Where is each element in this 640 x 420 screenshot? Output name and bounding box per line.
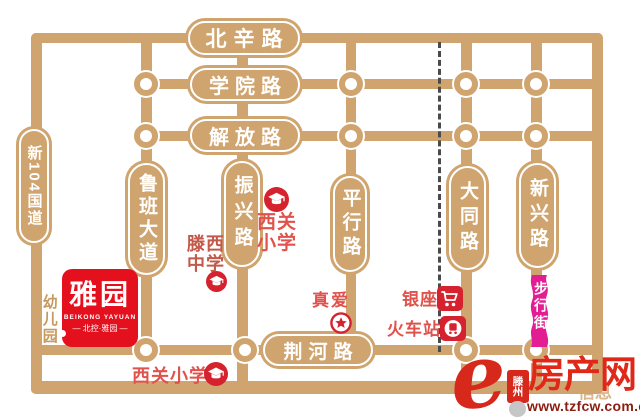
road-label-jinghe: 荆河路: [263, 334, 373, 366]
road-label-pingxing: 平行路: [333, 176, 367, 272]
road-label-pedestrian-street: 步行街: [531, 281, 551, 332]
project-logo: 雅园 BEIKONG YAYUAN — 北控·雅园 —: [62, 269, 138, 347]
landmark-xiguan-primary-south: 西关小学: [132, 366, 208, 386]
road-label-g104: 新104国道: [19, 129, 49, 243]
junction-ring: [339, 124, 363, 148]
watermark-capsule: [509, 401, 526, 417]
landmark-xiguan-primary-north: 西关 小学: [252, 212, 302, 255]
landmark-yinzuo: 银座: [402, 290, 438, 309]
project-subtitle: BEIKONG YAYUAN: [64, 314, 136, 321]
road-label-beixin: 北辛路: [188, 21, 300, 55]
junction-ring: [454, 124, 478, 148]
landmark-railway-station: 火车站: [387, 320, 441, 339]
project-title: 雅园: [69, 282, 131, 310]
landmark-text-line: 滕西: [182, 234, 230, 254]
watermark-url: www.tzfcw.com.cn: [527, 398, 640, 414]
landmark-tengxi-middle-school: 滕西 中学: [182, 234, 230, 274]
shopping-cart-icon: [437, 286, 463, 311]
junction-ring: [339, 72, 363, 96]
landmark-kindergarten: 幼儿园: [40, 294, 57, 345]
school-icon: [264, 187, 289, 212]
landmark-text-line: 小学: [252, 233, 302, 254]
road-label-datong: 大同路: [449, 166, 486, 270]
road-label-jiefang: 解放路: [190, 119, 300, 152]
school-icon: [204, 362, 228, 386]
road-top-segment: [31, 33, 603, 43]
logo-dot: [59, 330, 66, 337]
map-canvas: 北辛路 学院路 解放路 荆河路 新104国道 鲁班大道 振兴路 平行路 大同路 …: [0, 0, 640, 420]
watermark-e-logo: e: [446, 329, 511, 420]
junction-ring: [454, 72, 478, 96]
landmark-zhenai: 真爱: [312, 291, 350, 310]
junction-ring: [134, 124, 158, 148]
watermark-site-name: 房产网: [528, 356, 636, 393]
landmark-text-line: 西关: [252, 212, 302, 233]
road-label-xueyuan: 学院路: [190, 68, 300, 101]
junction-ring: [134, 338, 158, 362]
project-tagline: — 北控·雅园 —: [72, 323, 127, 334]
junction-ring: [524, 124, 548, 148]
road-label-luban: 鲁班大道: [128, 163, 165, 275]
junction-ring: [134, 72, 158, 96]
road-label-xinxing: 新兴路: [519, 163, 556, 268]
star-icon: [330, 312, 352, 334]
junction-ring: [524, 72, 548, 96]
junction-ring: [233, 338, 257, 362]
school-icon: [206, 271, 227, 292]
watermark-city-badge: 滕州: [507, 370, 529, 403]
